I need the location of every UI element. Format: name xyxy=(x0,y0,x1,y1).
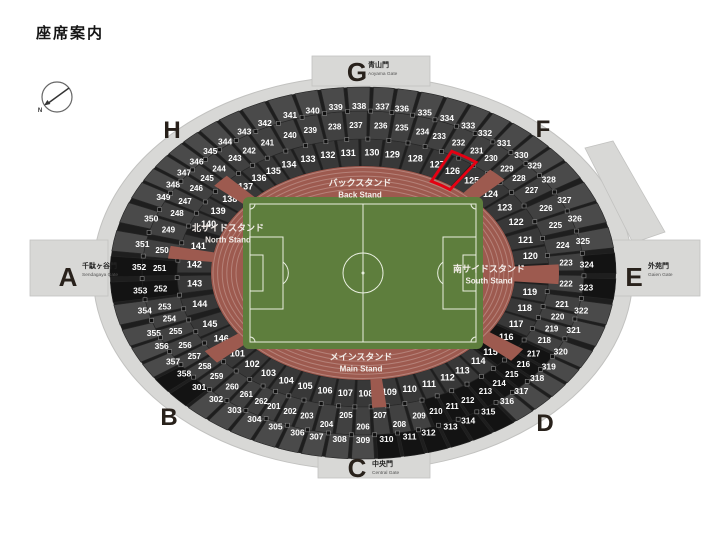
section-label-315: 315 xyxy=(481,406,495,416)
gate-name-en-c: Central Gate xyxy=(372,470,400,476)
stadium-svg: 1011021031041051061071081091101111121131… xyxy=(0,0,710,545)
stand-label-main-en: Main Stand xyxy=(340,365,383,374)
section-label-323: 323 xyxy=(579,283,593,293)
section-label-322: 322 xyxy=(574,306,588,316)
aisle-marker xyxy=(285,423,289,427)
aisle-marker xyxy=(187,318,191,322)
gate-d[interactable]: D xyxy=(536,410,553,437)
section-label-119: 119 xyxy=(523,287,538,297)
stand-label-back-jp: バックスタンド xyxy=(329,177,392,188)
section-label-220: 220 xyxy=(551,312,565,321)
stand-label-south-en: South Stand xyxy=(465,277,512,286)
section-label-240: 240 xyxy=(283,131,297,140)
section-label-333: 333 xyxy=(461,121,475,131)
section-label-210: 210 xyxy=(429,407,443,416)
section-label-229: 229 xyxy=(500,164,514,173)
section-label-106: 106 xyxy=(317,385,332,395)
section-label-239: 239 xyxy=(304,126,318,135)
aisle-marker xyxy=(250,163,254,167)
aisle-marker xyxy=(541,305,545,309)
section-label-118: 118 xyxy=(517,303,532,313)
aisle-marker xyxy=(580,251,584,255)
aisle-marker xyxy=(234,138,238,142)
section-label-344: 344 xyxy=(218,136,232,146)
aisle-marker xyxy=(203,200,207,204)
section-label-348: 348 xyxy=(166,180,180,190)
section-label-201: 201 xyxy=(267,402,281,411)
section-label-131: 131 xyxy=(341,148,356,158)
compass-north-label: N xyxy=(38,108,42,114)
pitch-centre-spot xyxy=(362,272,365,275)
aisle-marker xyxy=(366,137,370,141)
gate-letter-a: A xyxy=(59,262,78,292)
section-label-142: 142 xyxy=(187,260,202,270)
section-label-346: 346 xyxy=(189,156,203,166)
section-label-211: 211 xyxy=(446,402,459,411)
section-label-257: 257 xyxy=(188,352,202,361)
aisle-marker xyxy=(437,423,441,427)
aisle-marker xyxy=(387,138,391,142)
section-label-356: 356 xyxy=(155,341,169,351)
gate-name-jp-e: 外苑門 xyxy=(648,261,669,270)
aisle-marker xyxy=(502,358,506,362)
aisle-marker xyxy=(284,149,288,153)
section-label-228: 228 xyxy=(512,174,526,183)
section-label-102: 102 xyxy=(245,359,260,369)
aisle-marker xyxy=(450,389,454,393)
body: { "title": "座席案内", "compass": { "label":… xyxy=(0,0,710,545)
gate-name-jp-c: 中央門 xyxy=(372,459,393,468)
aisle-marker xyxy=(473,131,477,135)
section-label-232: 232 xyxy=(452,138,466,147)
section-label-248: 248 xyxy=(170,209,184,218)
section-label-241: 241 xyxy=(261,138,275,147)
aisle-marker xyxy=(324,140,328,144)
section-label-353: 353 xyxy=(133,285,147,295)
section-label-132: 132 xyxy=(320,150,335,160)
aisle-marker xyxy=(300,115,304,119)
aisle-marker xyxy=(373,433,377,437)
gate-letter-g: G xyxy=(347,57,367,87)
aisle-marker xyxy=(574,229,578,233)
section-label-202: 202 xyxy=(283,407,297,416)
section-label-350: 350 xyxy=(144,214,158,224)
stand-label-north-jp: 北サイドスタンド xyxy=(192,222,264,233)
section-label-226: 226 xyxy=(539,204,553,213)
aisle-marker xyxy=(264,417,268,421)
aisle-marker xyxy=(237,171,241,175)
aisle-marker xyxy=(304,144,308,148)
aisle-marker xyxy=(261,384,265,388)
aisle-marker xyxy=(158,336,162,340)
gate-letter-d: D xyxy=(536,410,553,437)
compass: N xyxy=(38,82,72,114)
aisle-marker xyxy=(420,398,424,402)
aisle-marker xyxy=(530,327,534,331)
section-label-139: 139 xyxy=(211,206,226,216)
section-label-208: 208 xyxy=(393,420,407,429)
section-label-213: 213 xyxy=(479,387,493,396)
compass-arrowhead xyxy=(44,100,50,106)
section-label-338: 338 xyxy=(352,101,366,111)
stand-label-north-en: North Stand xyxy=(205,236,251,245)
section-label-318: 318 xyxy=(530,373,544,383)
section-label-217: 217 xyxy=(527,350,541,359)
section-label-258: 258 xyxy=(198,362,212,371)
section-label-128: 128 xyxy=(408,153,423,163)
gate-f[interactable]: F xyxy=(536,116,551,143)
gate-tab-g xyxy=(312,56,430,86)
section-label-221: 221 xyxy=(555,300,569,309)
section-label-135: 135 xyxy=(266,166,281,176)
section-label-301: 301 xyxy=(192,382,206,392)
section-label-117: 117 xyxy=(509,319,524,329)
section-label-242: 242 xyxy=(243,146,257,155)
aisle-marker xyxy=(456,417,460,421)
aisle-marker xyxy=(525,379,529,383)
aisle-marker xyxy=(274,389,278,393)
aisle-marker xyxy=(524,162,528,166)
aisle-marker xyxy=(545,290,549,294)
section-label-112: 112 xyxy=(440,372,455,382)
section-label-209: 209 xyxy=(412,411,426,420)
section-label-341: 341 xyxy=(283,110,297,120)
section-label-225: 225 xyxy=(549,221,563,230)
aisle-marker xyxy=(552,190,556,194)
section-label-212: 212 xyxy=(461,396,475,405)
gate-name-en-a: Sendagaya Gate xyxy=(82,272,118,278)
aisle-marker xyxy=(454,124,458,128)
aisle-marker xyxy=(536,316,540,320)
section-label-234: 234 xyxy=(416,127,430,136)
section-label-314: 314 xyxy=(461,415,475,425)
aisle-marker xyxy=(582,274,586,278)
section-label-203: 203 xyxy=(300,411,314,420)
gate-name-en-e: Gaien Gate xyxy=(648,272,673,278)
section-label-358: 358 xyxy=(177,369,191,379)
section-label-246: 246 xyxy=(190,184,204,193)
aisle-marker xyxy=(345,138,349,142)
section-label-309: 309 xyxy=(356,435,370,445)
aisle-marker xyxy=(346,109,350,113)
section-label-249: 249 xyxy=(162,226,176,235)
aisle-marker xyxy=(510,190,514,194)
aisle-marker xyxy=(390,110,394,114)
aisle-marker xyxy=(457,156,461,160)
section-label-114: 114 xyxy=(471,356,486,366)
section-label-104: 104 xyxy=(279,375,294,385)
section-label-105: 105 xyxy=(298,381,313,391)
gate-name-jp-g: 青山門 xyxy=(368,60,389,69)
section-label-343: 343 xyxy=(237,126,251,136)
compass-needle xyxy=(47,88,69,104)
section-label-334: 334 xyxy=(440,113,454,123)
section-label-252: 252 xyxy=(154,284,168,293)
section-label-130: 130 xyxy=(364,148,379,158)
section-label-215: 215 xyxy=(505,370,519,379)
aisle-marker xyxy=(150,318,154,322)
aisle-marker xyxy=(479,374,483,378)
section-label-332: 332 xyxy=(478,128,492,138)
section-label-207: 207 xyxy=(373,411,387,420)
aisle-marker xyxy=(565,209,569,213)
section-label-303: 303 xyxy=(227,405,241,415)
section-label-259: 259 xyxy=(210,372,224,381)
aisle-marker xyxy=(182,307,186,311)
section-label-206: 206 xyxy=(356,423,370,432)
section-label-308: 308 xyxy=(332,434,346,444)
aisle-marker xyxy=(248,377,252,381)
section-label-329: 329 xyxy=(528,161,542,171)
section-label-306: 306 xyxy=(290,428,304,438)
stand-label-main-jp: メインスタンド xyxy=(330,351,393,362)
aisle-marker xyxy=(550,354,554,358)
section-label-236: 236 xyxy=(374,122,388,131)
section-label-110: 110 xyxy=(402,384,417,394)
section-label-354: 354 xyxy=(138,306,152,316)
aisle-marker xyxy=(158,208,162,212)
section-label-219: 219 xyxy=(545,324,559,333)
stadium-map: 1011021031041051061071081091101111121131… xyxy=(0,0,710,545)
section-label-345: 345 xyxy=(203,146,217,156)
section-label-351: 351 xyxy=(135,239,149,249)
aisle-marker xyxy=(202,341,206,345)
aisle-marker xyxy=(306,428,310,432)
aisle-marker xyxy=(190,168,194,172)
section-label-340: 340 xyxy=(306,105,320,115)
aisle-marker xyxy=(276,121,280,125)
section-label-339: 339 xyxy=(329,102,343,112)
section-label-305: 305 xyxy=(268,422,282,432)
aisle-marker xyxy=(545,254,549,258)
aisle-marker xyxy=(406,141,410,145)
section-label-205: 205 xyxy=(339,411,353,420)
gate-h[interactable]: H xyxy=(163,117,180,144)
gate-letter-e: E xyxy=(625,262,642,292)
gate-letter-f: F xyxy=(536,116,551,143)
section-label-126: 126 xyxy=(445,166,460,176)
aisle-marker xyxy=(465,382,469,386)
aisle-marker xyxy=(140,277,144,281)
aisle-marker xyxy=(141,254,145,258)
aisle-marker xyxy=(337,404,341,408)
aisle-marker xyxy=(522,204,526,208)
section-label-136: 136 xyxy=(251,173,266,183)
section-label-254: 254 xyxy=(163,315,177,324)
section-label-121: 121 xyxy=(518,235,533,245)
gate-name-en-g: Aoyama Gate xyxy=(368,71,398,77)
section-label-313: 313 xyxy=(443,422,457,432)
section-label-325: 325 xyxy=(576,236,590,246)
aisle-marker xyxy=(179,179,183,183)
section-label-307: 307 xyxy=(309,431,323,441)
section-label-336: 336 xyxy=(395,104,409,114)
section-label-331: 331 xyxy=(497,138,511,148)
section-label-328: 328 xyxy=(542,175,556,185)
aisle-marker xyxy=(323,111,327,115)
section-label-256: 256 xyxy=(178,341,192,350)
aisle-marker xyxy=(203,157,207,161)
section-label-317: 317 xyxy=(514,386,528,396)
section-label-145: 145 xyxy=(202,319,217,329)
section-label-218: 218 xyxy=(538,336,552,345)
section-label-235: 235 xyxy=(395,124,409,133)
aisle-marker xyxy=(573,317,577,321)
aisle-marker xyxy=(254,129,258,133)
aisle-marker xyxy=(222,360,226,364)
aisle-marker xyxy=(541,236,545,240)
aisle-marker xyxy=(234,369,238,373)
section-label-231: 231 xyxy=(470,146,484,155)
section-label-133: 133 xyxy=(300,154,315,164)
section-label-224: 224 xyxy=(556,241,570,250)
aisle-marker xyxy=(217,148,221,152)
aisle-marker xyxy=(423,145,427,149)
aisle-marker xyxy=(207,388,211,392)
gate-b[interactable]: B xyxy=(160,404,177,431)
aisle-marker xyxy=(169,191,173,195)
aisle-marker xyxy=(411,113,415,117)
section-label-107: 107 xyxy=(338,388,353,398)
aisle-marker xyxy=(440,150,444,154)
section-label-316: 316 xyxy=(500,396,514,406)
aisle-marker xyxy=(265,156,269,160)
section-label-260: 260 xyxy=(226,382,240,391)
section-label-321: 321 xyxy=(566,325,580,335)
aisle-marker xyxy=(475,410,479,414)
section-label-304: 304 xyxy=(247,414,261,424)
aisle-marker xyxy=(179,363,183,367)
section-label-120: 120 xyxy=(523,251,538,261)
section-label-253: 253 xyxy=(158,302,172,311)
section-label-324: 324 xyxy=(580,259,594,269)
section-label-347: 347 xyxy=(177,167,191,177)
aisle-marker xyxy=(533,220,537,224)
section-label-311: 311 xyxy=(403,431,417,441)
section-label-251: 251 xyxy=(153,264,167,273)
section-label-319: 319 xyxy=(542,361,556,371)
gate-letter-h: H xyxy=(163,117,180,144)
aisle-marker xyxy=(491,140,495,144)
gate-name-jp-a: 千駄ヶ谷門 xyxy=(82,261,117,270)
section-label-216: 216 xyxy=(517,360,531,369)
stand-label-back-en: Back Stand xyxy=(338,191,382,200)
section-label-250: 250 xyxy=(155,246,169,255)
aisle-marker xyxy=(522,338,526,342)
section-label-245: 245 xyxy=(200,174,214,183)
section-label-227: 227 xyxy=(525,186,539,195)
section-label-312: 312 xyxy=(421,428,435,438)
aisle-marker xyxy=(435,394,439,398)
section-label-326: 326 xyxy=(568,214,582,224)
section-label-302: 302 xyxy=(209,394,223,404)
gate-letter-b: B xyxy=(160,404,177,431)
aisle-marker xyxy=(287,394,291,398)
aisle-marker xyxy=(326,431,330,435)
aisle-marker xyxy=(416,428,420,432)
section-label-310: 310 xyxy=(379,434,393,444)
section-label-223: 223 xyxy=(559,259,573,268)
aisle-marker xyxy=(539,367,543,371)
section-label-320: 320 xyxy=(554,346,568,356)
section-label-335: 335 xyxy=(418,107,432,117)
section-label-327: 327 xyxy=(557,195,571,205)
aisle-marker xyxy=(509,151,513,155)
aisle-marker xyxy=(187,224,191,228)
section-label-238: 238 xyxy=(328,122,342,131)
aisle-marker xyxy=(143,298,147,302)
section-label-261: 261 xyxy=(240,390,254,399)
section-label-111: 111 xyxy=(422,379,436,389)
seating-guide-page: 座席案内 10110210310410510610710810911011111… xyxy=(0,0,710,545)
aisle-marker xyxy=(433,118,437,122)
aisle-marker xyxy=(563,337,567,341)
section-label-243: 243 xyxy=(228,154,242,163)
section-label-337: 337 xyxy=(375,102,389,112)
section-label-113: 113 xyxy=(455,365,470,375)
section-label-342: 342 xyxy=(258,118,272,128)
aisle-marker xyxy=(213,189,217,193)
section-label-222: 222 xyxy=(559,279,573,288)
aisle-marker xyxy=(494,400,498,404)
section-label-143: 143 xyxy=(187,279,202,289)
section-label-244: 244 xyxy=(212,164,226,173)
aisle-marker xyxy=(180,241,184,245)
section-label-122: 122 xyxy=(509,217,524,227)
section-label-134: 134 xyxy=(281,160,296,170)
section-label-357: 357 xyxy=(166,356,180,366)
section-label-233: 233 xyxy=(433,132,447,141)
section-label-237: 237 xyxy=(349,121,363,130)
aisle-marker xyxy=(369,109,373,113)
section-label-230: 230 xyxy=(484,154,498,163)
aisle-marker xyxy=(579,296,583,300)
aisle-marker xyxy=(403,402,407,406)
aisle-marker xyxy=(353,405,357,409)
section-label-262: 262 xyxy=(255,397,269,406)
section-label-103: 103 xyxy=(261,368,276,378)
section-label-129: 129 xyxy=(385,149,400,159)
aisle-marker xyxy=(194,330,198,334)
aisle-marker xyxy=(168,350,172,354)
section-label-123: 123 xyxy=(497,202,512,212)
section-label-144: 144 xyxy=(192,299,207,309)
aisle-marker xyxy=(510,390,514,394)
aisle-marker xyxy=(192,375,196,379)
aisle-marker xyxy=(178,293,182,297)
section-label-214: 214 xyxy=(492,379,506,388)
section-label-247: 247 xyxy=(178,197,192,206)
aisle-marker xyxy=(302,398,306,402)
aisle-marker xyxy=(244,408,248,412)
section-label-204: 204 xyxy=(320,420,334,429)
stand-label-south-jp: 南サイドスタンド xyxy=(453,263,525,274)
aisle-marker xyxy=(491,367,495,371)
aisle-marker xyxy=(319,402,323,406)
section-label-255: 255 xyxy=(169,327,183,336)
gate-letter-c: C xyxy=(348,453,367,483)
aisle-marker xyxy=(225,399,229,403)
aisle-marker xyxy=(396,431,400,435)
section-label-352: 352 xyxy=(132,262,146,272)
section-label-330: 330 xyxy=(514,150,528,160)
aisle-marker xyxy=(175,276,179,280)
aisle-marker xyxy=(349,433,353,437)
aisle-marker xyxy=(537,174,541,178)
aisle-marker xyxy=(147,230,151,234)
aisle-marker xyxy=(195,211,199,215)
